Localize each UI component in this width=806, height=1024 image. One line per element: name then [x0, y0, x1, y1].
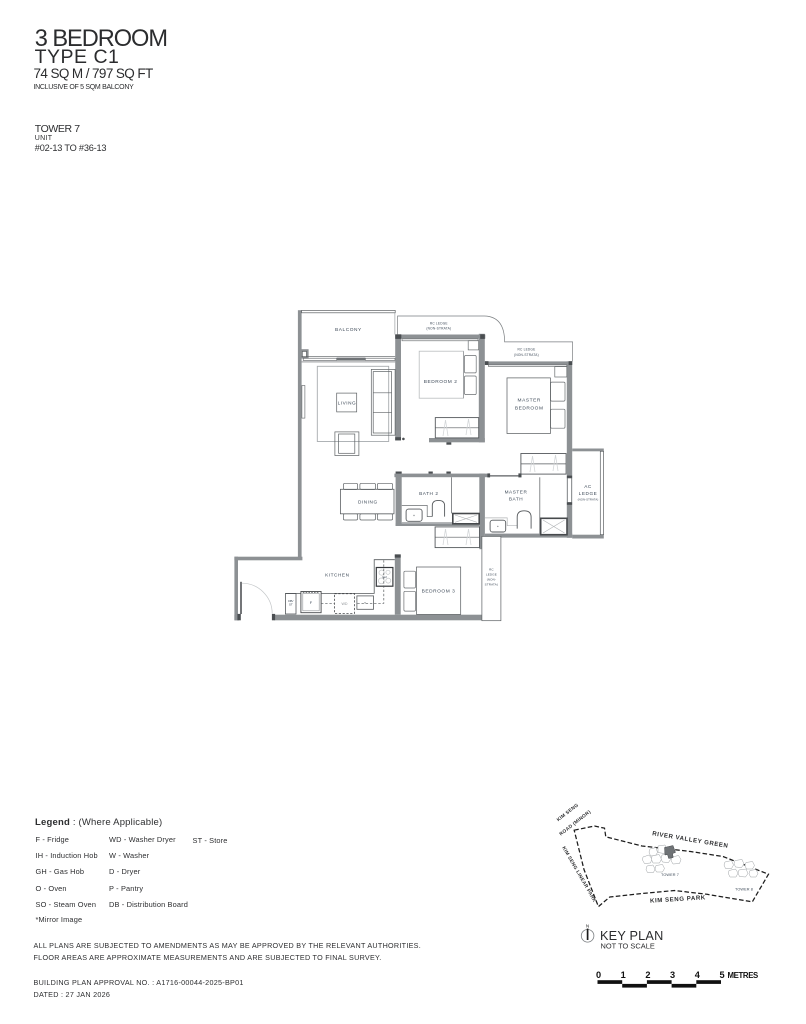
svg-text:MASTER: MASTER: [518, 397, 541, 403]
svg-text:BALCONY: BALCONY: [335, 327, 362, 333]
svg-text:LEDGE: LEDGE: [486, 573, 497, 577]
svg-text:(NON-STRATA): (NON-STRATA): [514, 353, 539, 357]
svg-text:1: 1: [621, 970, 626, 980]
svg-text:DINING: DINING: [358, 499, 378, 504]
svg-text:RC LEDGE: RC LEDGE: [430, 321, 448, 325]
svg-text:(NON-STRATA): (NON-STRATA): [578, 498, 599, 502]
svg-text:4: 4: [695, 970, 701, 980]
svg-text:KIM SENG LINEAR PARK: KIM SENG LINEAR PARK: [560, 846, 597, 904]
svg-text:WD: WD: [342, 602, 348, 606]
svg-text:KITCHEN: KITCHEN: [325, 573, 349, 578]
svg-text:RC LEDGE: RC LEDGE: [518, 348, 536, 352]
svg-text:METRES: METRES: [728, 971, 759, 980]
svg-text:5: 5: [719, 970, 724, 980]
svg-text:LEDGE: LEDGE: [579, 491, 598, 496]
svg-text:N: N: [586, 923, 589, 928]
svg-text:RC: RC: [489, 568, 494, 572]
svg-text:STRATA): STRATA): [485, 583, 498, 587]
svg-text:BEDROOM 3: BEDROOM 3: [422, 588, 456, 594]
svg-text:NOT TO SCALE: NOT TO SCALE: [601, 941, 655, 950]
svg-text:MASTER: MASTER: [505, 490, 528, 495]
svg-text:2: 2: [645, 970, 650, 980]
svg-text:AC: AC: [584, 484, 592, 489]
svg-text:BATH: BATH: [509, 496, 523, 501]
svg-text:BEDROOM 2: BEDROOM 2: [424, 379, 458, 385]
svg-text:0: 0: [596, 970, 601, 980]
svg-text:IH2: IH2: [382, 575, 387, 579]
svg-text:ST: ST: [289, 603, 293, 607]
svg-text:(NON-: (NON-: [487, 578, 496, 582]
svg-text:BATH 2: BATH 2: [419, 491, 438, 496]
svg-text:BEDROOM: BEDROOM: [515, 406, 544, 412]
svg-text:3: 3: [670, 970, 675, 980]
svg-text:KIM SENG PARK: KIM SENG PARK: [650, 894, 706, 904]
svg-text:(NON-STRATA): (NON-STRATA): [426, 327, 451, 331]
svg-text:TOWER 8: TOWER 8: [735, 887, 753, 891]
svg-text:LIVING: LIVING: [338, 401, 357, 406]
svg-text:TOWER 7: TOWER 7: [661, 873, 679, 877]
